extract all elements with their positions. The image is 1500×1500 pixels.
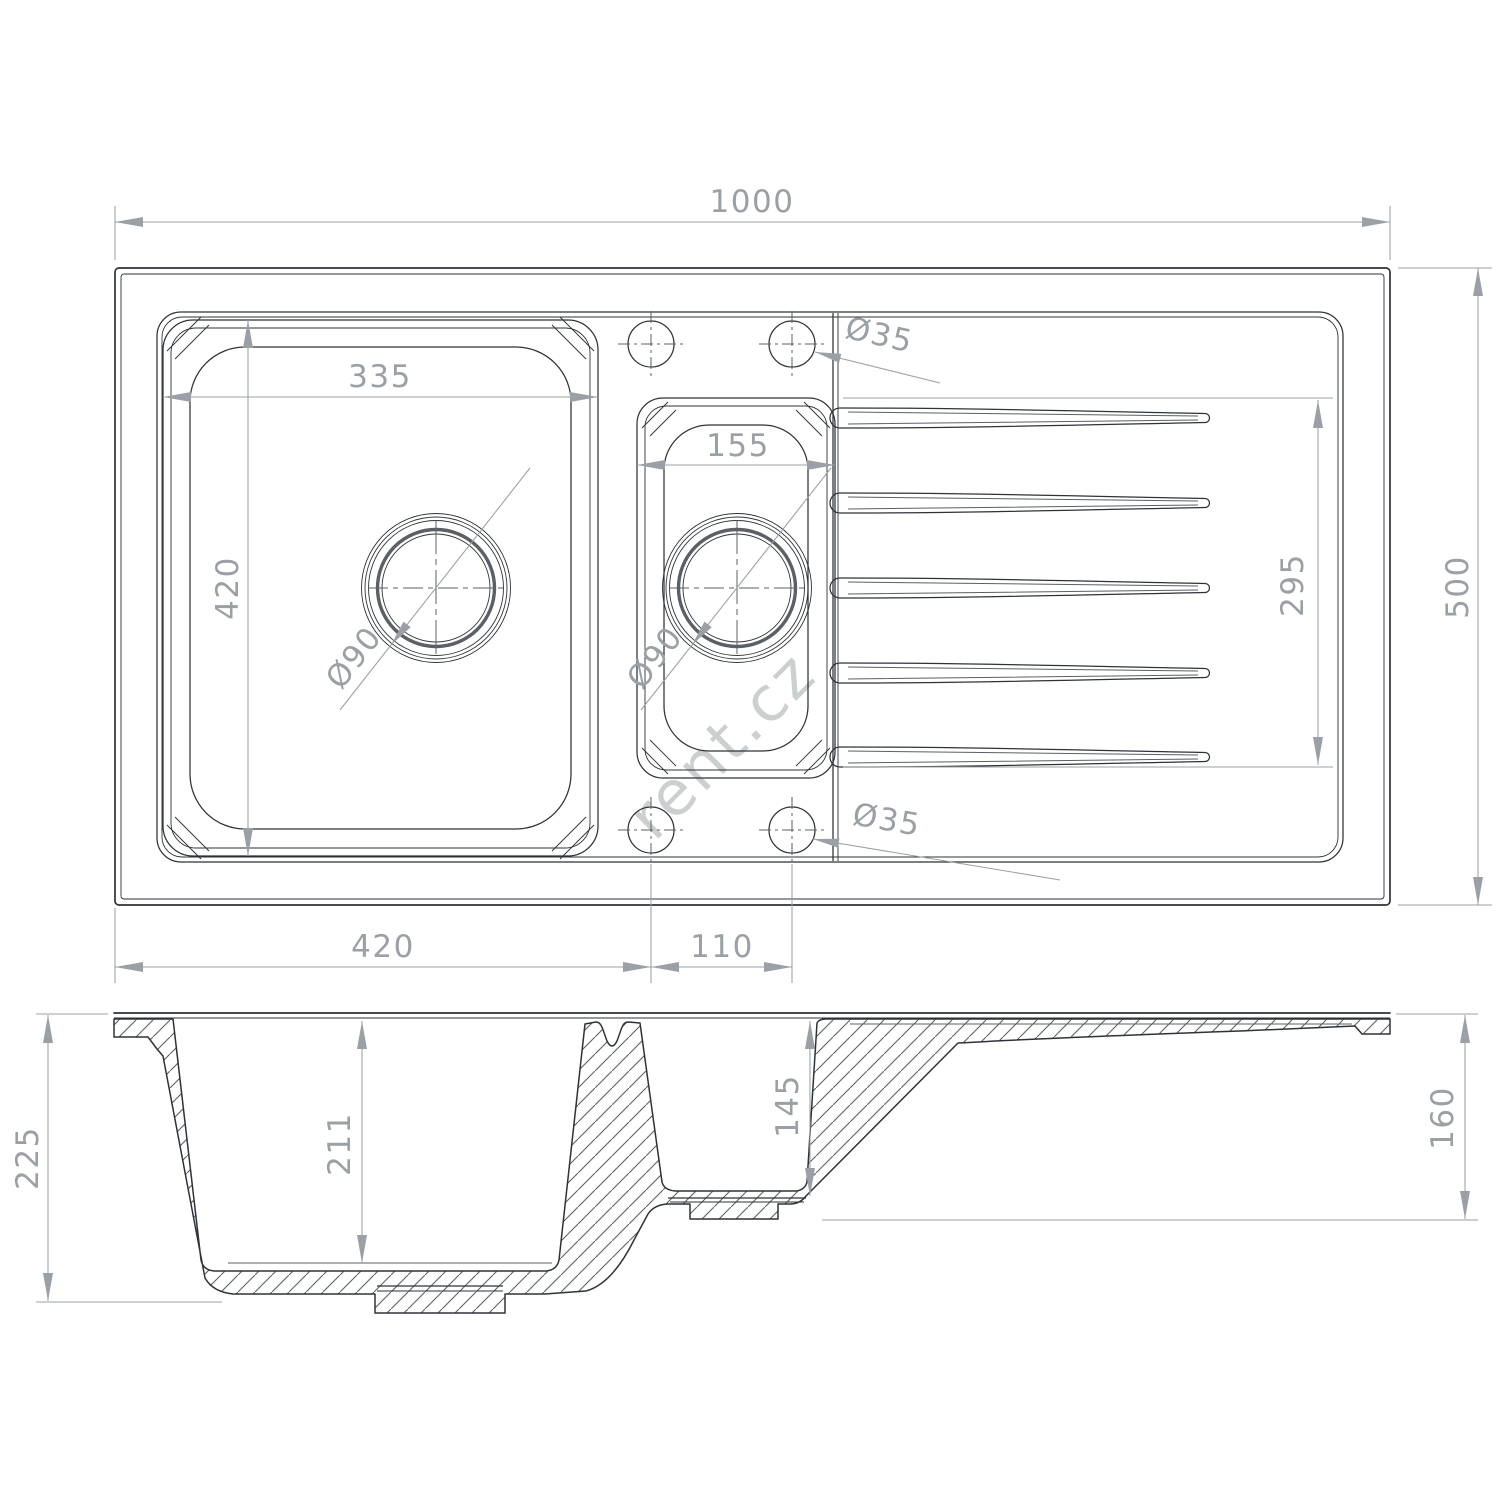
- drainer-grooves: [830, 408, 1210, 767]
- countertop-line: [114, 1013, 1390, 1018]
- dim-main-bowl-inner-depth: 211: [322, 1021, 367, 1263]
- dim-label: 335: [348, 359, 412, 395]
- drainer-groove: [830, 408, 1210, 428]
- dim-overall-width: 1000: [115, 184, 1390, 260]
- dim-label: 1000: [710, 184, 795, 220]
- drainer-groove: [830, 493, 1210, 513]
- drainer-groove: [830, 747, 1210, 767]
- drainer-groove: [830, 663, 1210, 683]
- dim-label: Ø90: [319, 620, 389, 696]
- dim-small-bowl-inner-depth: 145: [770, 1021, 815, 1196]
- dim-label: 110: [690, 929, 754, 965]
- drawing-canvas: rent.cz: [0, 0, 1500, 1500]
- label-tap-hole-diameter-top: Ø35: [815, 310, 940, 383]
- dim-label: Ø35: [850, 796, 924, 843]
- dim-label: 155: [706, 428, 770, 464]
- label-main-drain-diameter: Ø90: [319, 468, 530, 710]
- side-view: 225 211 145 160: [10, 1013, 1478, 1313]
- sink-technical-drawing: rent.cz: [0, 0, 1500, 1500]
- dim-label: 225: [10, 1126, 46, 1190]
- dim-label: 420: [210, 556, 246, 620]
- dim-label: 500: [1440, 555, 1476, 619]
- drainer-groove: [830, 578, 1210, 598]
- dim-label: Ø35: [842, 310, 917, 360]
- dim-main-bowl-depth: 420: [210, 320, 253, 856]
- tap-hole: [618, 311, 684, 377]
- dim-label: 160: [1425, 1086, 1461, 1150]
- dim-overall-depth: 500: [1398, 268, 1492, 905]
- dim-label: 145: [770, 1074, 806, 1138]
- dim-label: 295: [1275, 553, 1311, 617]
- dim-main-bowl-width: 335: [163, 359, 598, 402]
- inner-frame: [157, 312, 1343, 862]
- dim-main-bowl-offset: 420: [115, 864, 792, 983]
- dim-tap-hole-spacing: 110: [651, 929, 792, 972]
- tap-hole: [759, 311, 825, 377]
- top-view: 1000 500 335 420 155: [115, 184, 1492, 983]
- section-detail-lines: [228, 1024, 1352, 1291]
- tap-hole: [759, 797, 825, 863]
- outer-frame: [115, 268, 1390, 905]
- label-tap-hole-diameter-bottom: Ø35: [813, 796, 1060, 880]
- dim-label: 211: [322, 1112, 358, 1176]
- dim-label: Ø90: [620, 620, 690, 696]
- section-body: [114, 1019, 1390, 1313]
- dim-small-bowl-width: 155: [637, 428, 835, 470]
- dim-overall-height: 225: [10, 1014, 222, 1302]
- dim-label: 420: [351, 929, 415, 965]
